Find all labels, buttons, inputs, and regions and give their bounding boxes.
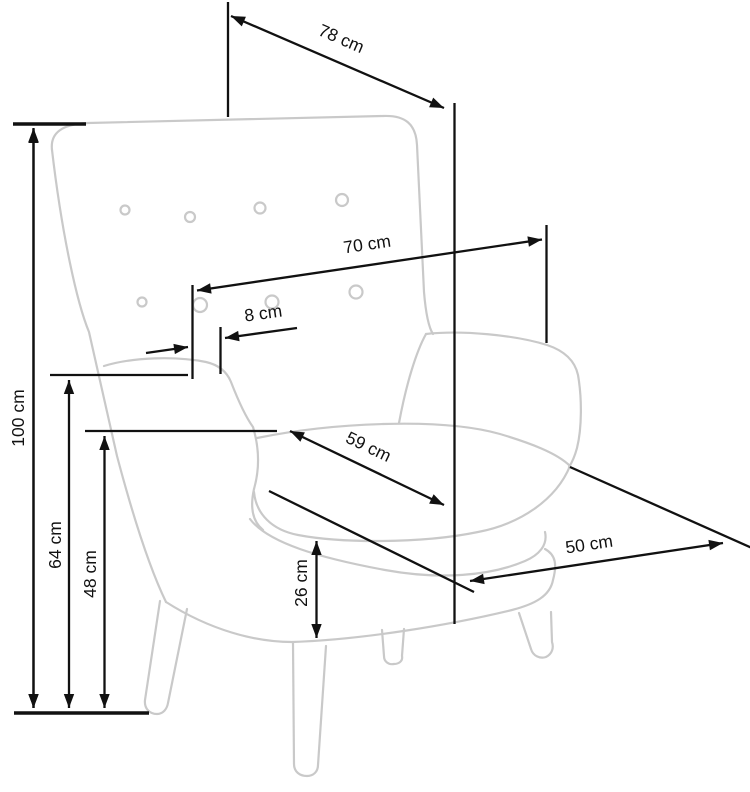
dimension-100cm: 100 cm: [8, 124, 86, 708]
dim-64cm-label: 64 cm: [45, 521, 65, 569]
dimension-arrow-left: [146, 347, 188, 353]
dimension-70cm: 70 cm: [193, 225, 547, 379]
chair-seat-cushion-bottom: [254, 466, 570, 541]
dimension-78cm: 78 cm: [228, 2, 444, 117]
tufting-button: [255, 203, 266, 214]
dimension-59cm: 59 cm: [290, 427, 444, 505]
tufting-button: [336, 194, 348, 206]
chair-right-arm-inner: [399, 334, 426, 423]
dim-26cm-label: 26 cm: [291, 559, 311, 607]
dimension-64cm: 64 cm: [45, 375, 188, 708]
dim-8cm-label: 8 cm: [243, 301, 283, 326]
dim-70cm-label: 70 cm: [342, 231, 392, 258]
tufting-buttons: [121, 194, 363, 312]
dim-48cm-label: 48 cm: [80, 550, 100, 598]
chair-leg-front-right: [293, 643, 326, 776]
dimension-50cm: 50 cm: [269, 467, 750, 592]
dim-100cm-label: 100 cm: [8, 389, 28, 446]
dimension-arrow-right: [225, 328, 297, 338]
dimension-8cm: 8 cm: [146, 301, 297, 374]
tufting-button: [121, 206, 130, 215]
dimension-48cm: 48 cm: [80, 431, 277, 708]
dimension-26cm: 26 cm: [291, 541, 317, 638]
tufting-button: [350, 286, 363, 299]
chair-leg-rear-right: [519, 612, 553, 658]
dim-78cm-label: 78 cm: [316, 20, 368, 57]
chair-left-armrest: [104, 358, 258, 489]
chair-leg-front-left: [145, 601, 187, 714]
chair-backrest-outline: [52, 116, 433, 334]
tufting-button: [193, 298, 207, 312]
tufting-button: [138, 298, 147, 307]
chair-base-bottom: [166, 549, 555, 642]
chair-right-armrest: [426, 333, 581, 467]
chair-seat-cushion-top: [257, 424, 570, 466]
armchair-dimension-diagram: 100 cm 64 cm 48 cm 78 cm 70 cm 8 cm 5: [0, 0, 750, 792]
chair-illustration: [52, 116, 581, 776]
diagram-svg: 100 cm 64 cm 48 cm 78 cm 70 cm 8 cm 5: [0, 0, 750, 792]
tufting-button: [185, 212, 195, 222]
dim-50cm-label: 50 cm: [564, 531, 614, 558]
